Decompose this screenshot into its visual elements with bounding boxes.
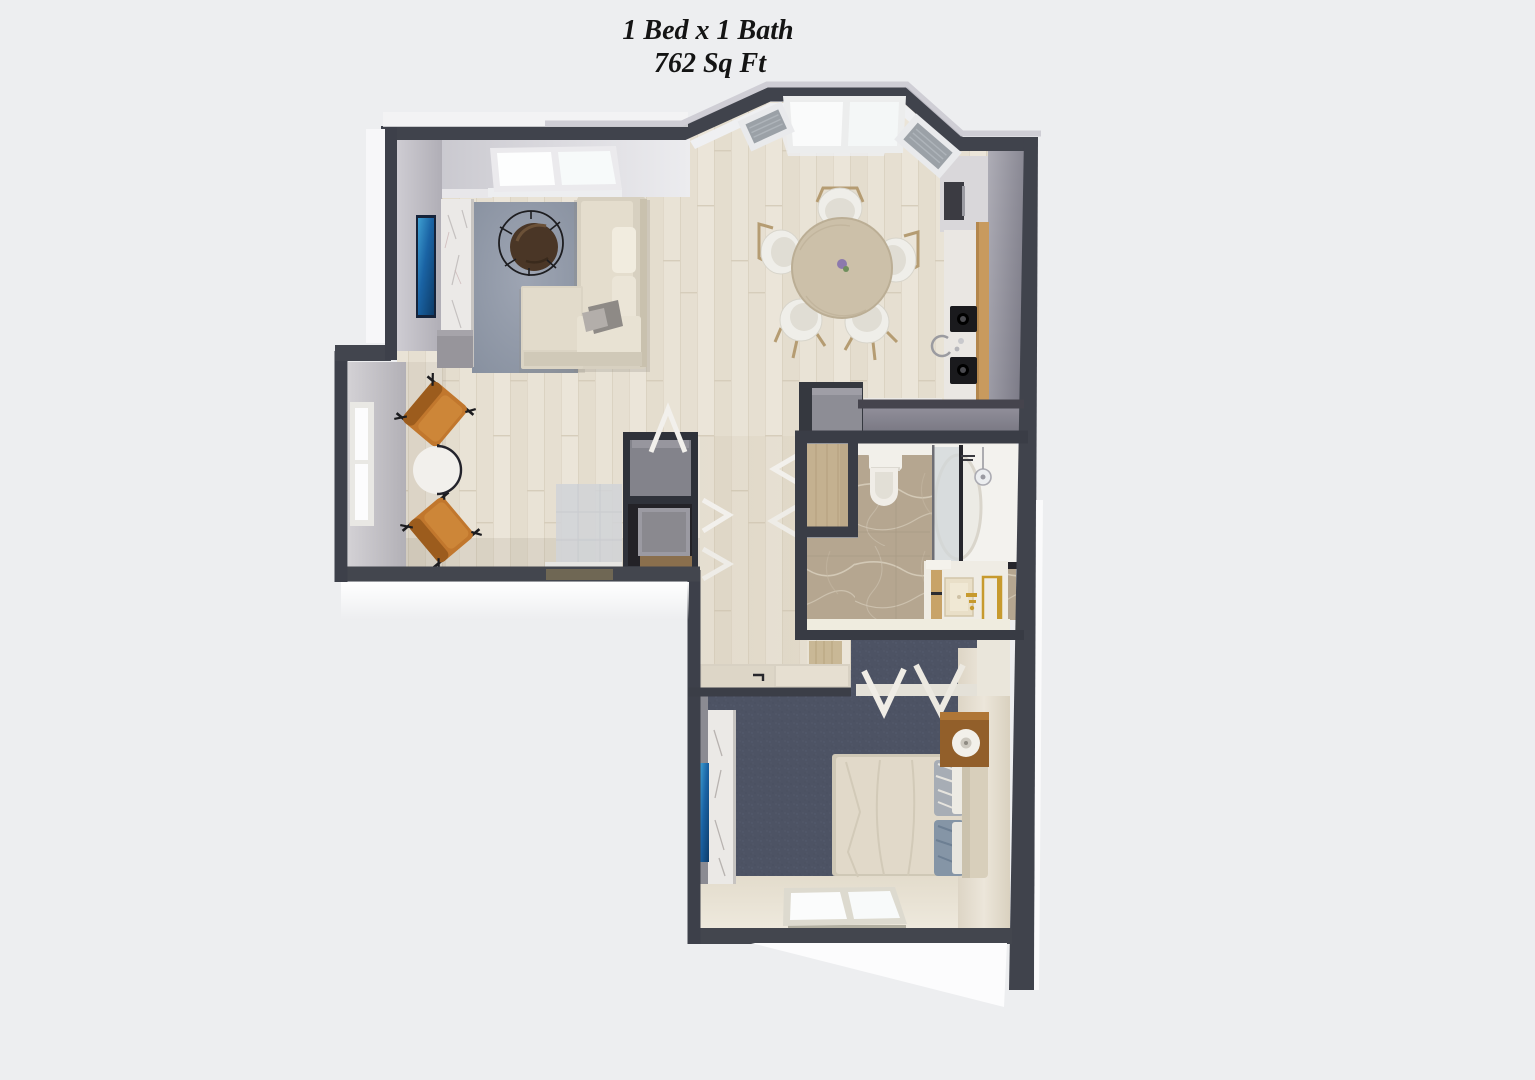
svg-text:1 Bed x 1 Bath: 1 Bed x 1 Bath <box>622 15 793 46</box>
svg-text:762 Sq Ft: 762 Sq Ft <box>654 48 767 79</box>
